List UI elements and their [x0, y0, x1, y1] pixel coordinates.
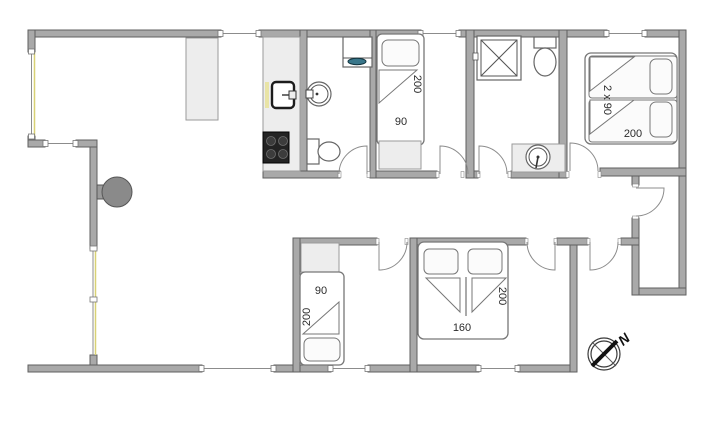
toilet-1	[307, 139, 340, 164]
wall-living-bed3	[293, 238, 300, 372]
wall-kitchen-bath1	[300, 30, 307, 178]
compass-rose: N	[588, 329, 633, 370]
floorplan-drawing: 200 90 2 x 90 200 90 200	[0, 0, 718, 422]
stove	[263, 132, 289, 163]
wall-bed2-bottom	[600, 168, 686, 176]
wall-top-1	[28, 30, 221, 37]
door-entrance	[587, 239, 621, 271]
bed3-length-label: 200	[301, 308, 313, 326]
floorplan-canvas: 200 90 2 x 90 200 90 200	[0, 0, 718, 422]
kitchen-worktop-highlight	[265, 82, 269, 108]
bathroom1	[306, 37, 372, 164]
wall-west	[90, 147, 97, 249]
bed1-width-label: 90	[395, 116, 407, 128]
round-basin	[306, 82, 331, 106]
tall-cabinet	[186, 38, 218, 120]
kitchen-sink	[272, 82, 296, 108]
wall-east-lower	[570, 238, 577, 372]
shower	[473, 36, 521, 80]
fireplace	[97, 177, 132, 207]
wall-bottom-2	[274, 365, 331, 372]
door-bedroom2	[566, 143, 601, 178]
wardrobe-bed3	[301, 243, 339, 272]
bed2-width-label: 2 x 90	[601, 85, 613, 115]
bathroom2	[473, 36, 565, 172]
bedroom3: 90 200	[300, 243, 344, 365]
door-bathroom1	[338, 146, 370, 178]
wall-annex-left-lower	[632, 218, 639, 295]
door-bathroom2	[477, 146, 511, 178]
wardrobe-bed1	[379, 141, 421, 169]
bed3-width-label: 90	[315, 285, 327, 297]
wall-hall-bottom-4	[621, 238, 639, 245]
wall-annex-bottom	[632, 288, 686, 295]
wall-bed3-bed4	[410, 238, 417, 372]
door-bedroom4	[525, 239, 557, 271]
washing-machine	[343, 37, 372, 67]
bed1-length-label: 200	[411, 75, 423, 93]
door-bedroom1	[436, 146, 468, 178]
vanity-basin	[512, 144, 565, 172]
bed4-width-label: 160	[453, 322, 471, 334]
living-room	[97, 177, 132, 207]
toilet-2	[534, 37, 556, 76]
bedroom4: 200 160	[418, 242, 508, 339]
wall-bed1-bath2	[466, 30, 474, 178]
door-annex	[633, 184, 665, 219]
kitchen	[186, 37, 300, 171]
wall-hall-top-2	[376, 171, 437, 178]
wall-hall-top-1	[263, 171, 340, 178]
wall-hall-bottom-3	[557, 238, 588, 245]
wall-bottom-1	[28, 365, 202, 372]
wall-bottom-3	[368, 365, 479, 372]
wall-elbow-left	[28, 140, 45, 147]
bed2-length-label: 200	[624, 128, 642, 140]
wall-elbow-right	[76, 140, 97, 147]
door-bedroom3	[376, 239, 408, 271]
wall-bottom-4	[518, 365, 577, 372]
wall-right	[679, 30, 686, 295]
bedroom1: 200 90	[377, 34, 424, 169]
bed4-length-label: 200	[496, 287, 508, 305]
bedroom2: 2 x 90 200	[585, 53, 677, 144]
